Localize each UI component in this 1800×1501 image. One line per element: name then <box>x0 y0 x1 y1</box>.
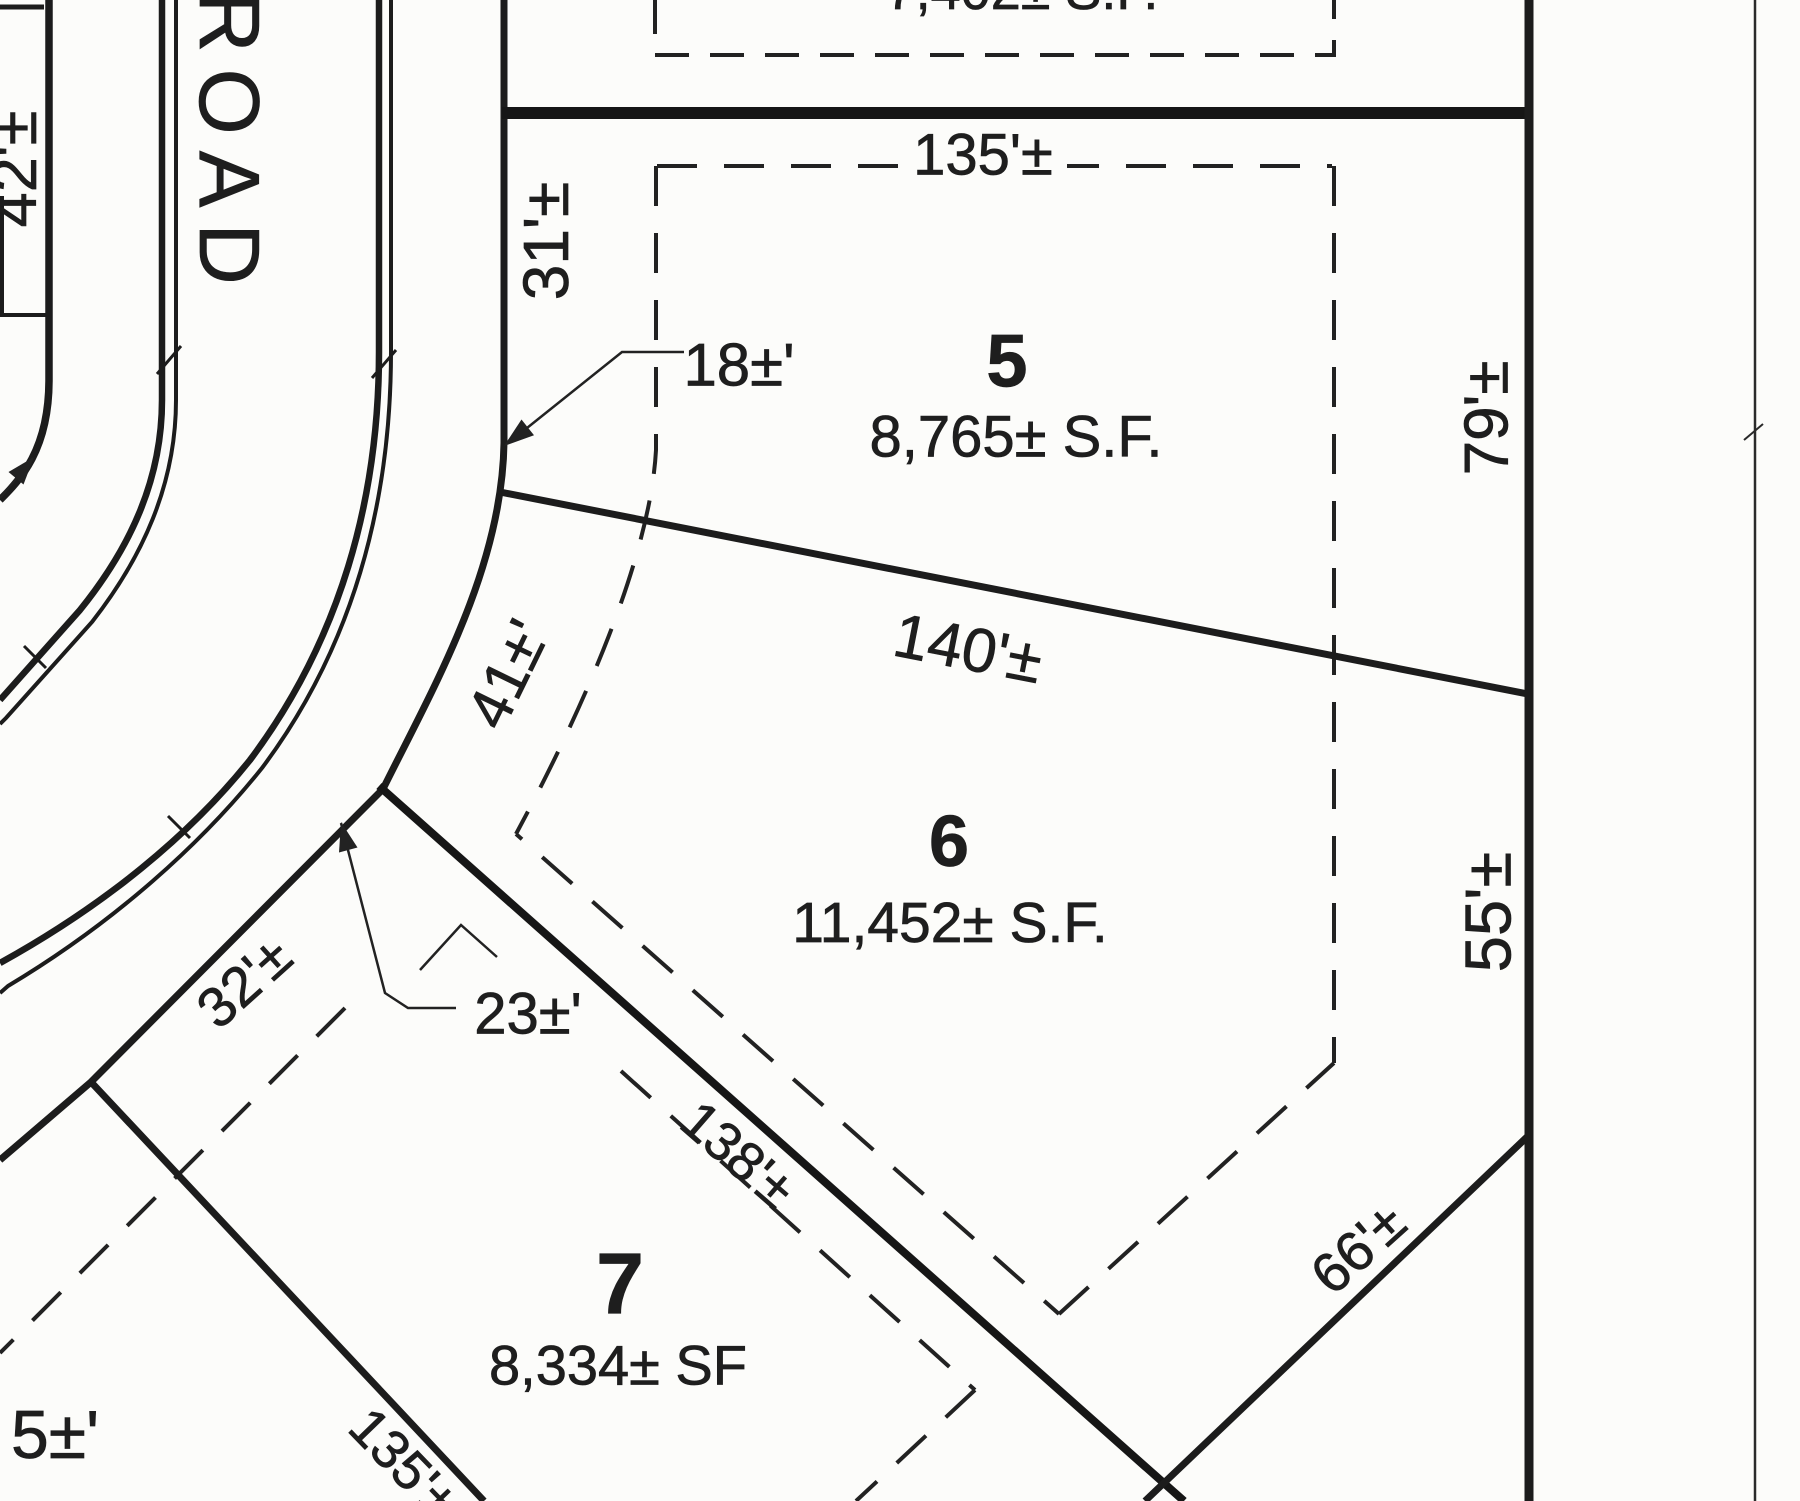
svg-text:31'±: 31'± <box>510 182 582 301</box>
svg-text:7,402± S.F.: 7,402± S.F. <box>886 0 1159 21</box>
svg-text:8,334± SF: 8,334± SF <box>489 1334 747 1397</box>
svg-text:23±': 23±' <box>474 982 581 1047</box>
svg-text:42'±: 42'± <box>0 111 50 228</box>
svg-text:79'±: 79'± <box>1453 361 1522 476</box>
svg-text:5: 5 <box>986 320 1027 403</box>
svg-text:18±': 18±' <box>683 332 794 399</box>
svg-text:ROAD: ROAD <box>181 0 276 301</box>
svg-text:6: 6 <box>929 802 969 882</box>
svg-text:7: 7 <box>596 1236 644 1332</box>
svg-text:8,765± S.F.: 8,765± S.F. <box>869 405 1162 470</box>
svg-text:5±': 5±' <box>11 1397 99 1473</box>
svg-text:135'±: 135'± <box>913 123 1053 188</box>
svg-text:55'±: 55'± <box>1452 852 1525 972</box>
svg-text:11,452± S.F.: 11,452± S.F. <box>792 891 1107 955</box>
